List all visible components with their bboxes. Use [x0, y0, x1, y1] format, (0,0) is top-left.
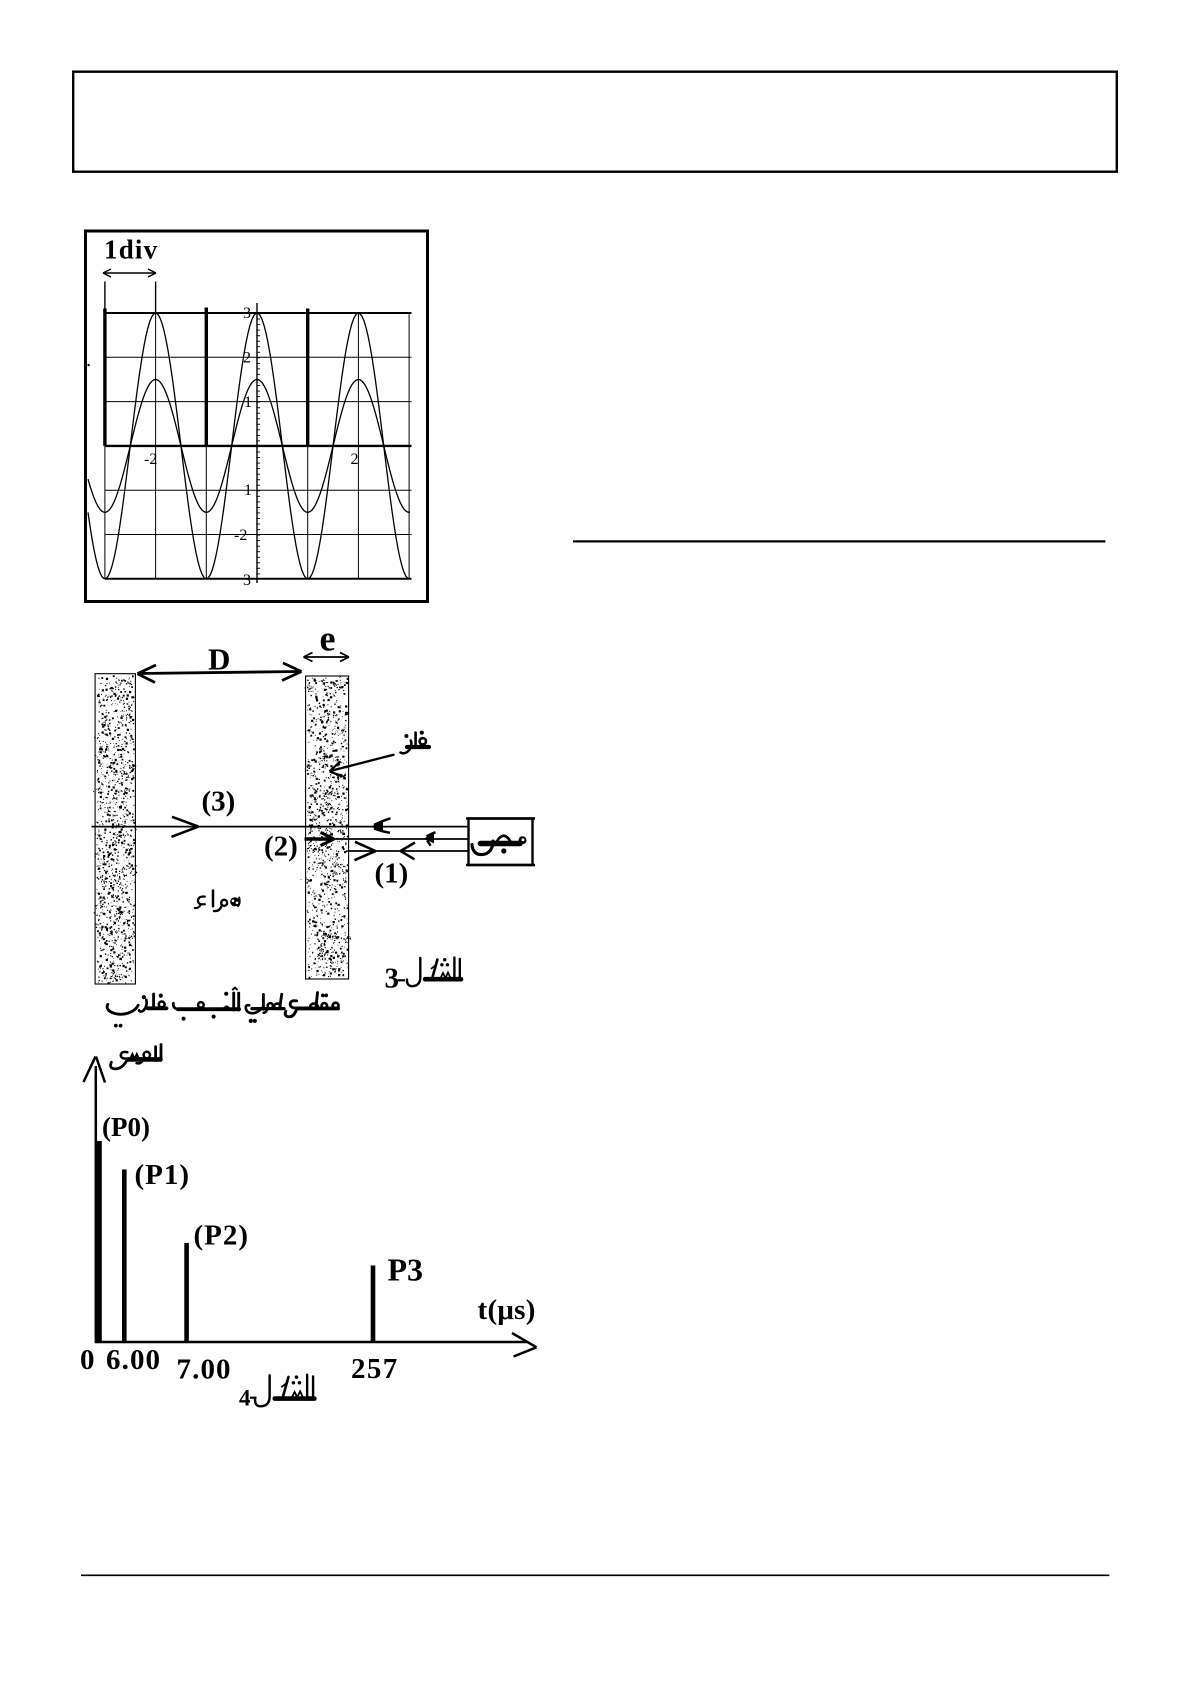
svg-text:(P0): (P0) [102, 1112, 150, 1142]
svg-text:e: e [320, 619, 336, 659]
svg-text:1: 1 [244, 482, 252, 499]
svg-text:P3: P3 [388, 1252, 424, 1288]
svg-text:1div: 1div [104, 235, 158, 265]
svg-text:3: 3 [243, 572, 251, 589]
svg-text:-2: -2 [144, 451, 157, 468]
svg-text:(1): (1) [375, 858, 409, 890]
svg-text:(P1): (P1) [135, 1159, 191, 1191]
svg-text:t(μs): t(μs) [478, 1294, 536, 1326]
svg-text:4: 4 [239, 1386, 251, 1411]
svg-text:(P2): (P2) [194, 1220, 250, 1252]
svg-text:7.00: 7.00 [177, 1354, 232, 1386]
svg-text:2: 2 [351, 451, 359, 468]
svg-text:(2): (2) [264, 831, 298, 863]
svg-text:257: 257 [351, 1353, 399, 1385]
svg-text:3: 3 [243, 305, 251, 322]
svg-text:0: 0 [80, 1344, 95, 1376]
svg-text:3: 3 [385, 963, 400, 995]
svg-text:-2: -2 [234, 527, 247, 544]
svg-text:6.00: 6.00 [106, 1344, 161, 1376]
svg-text:(3): (3) [202, 786, 236, 818]
